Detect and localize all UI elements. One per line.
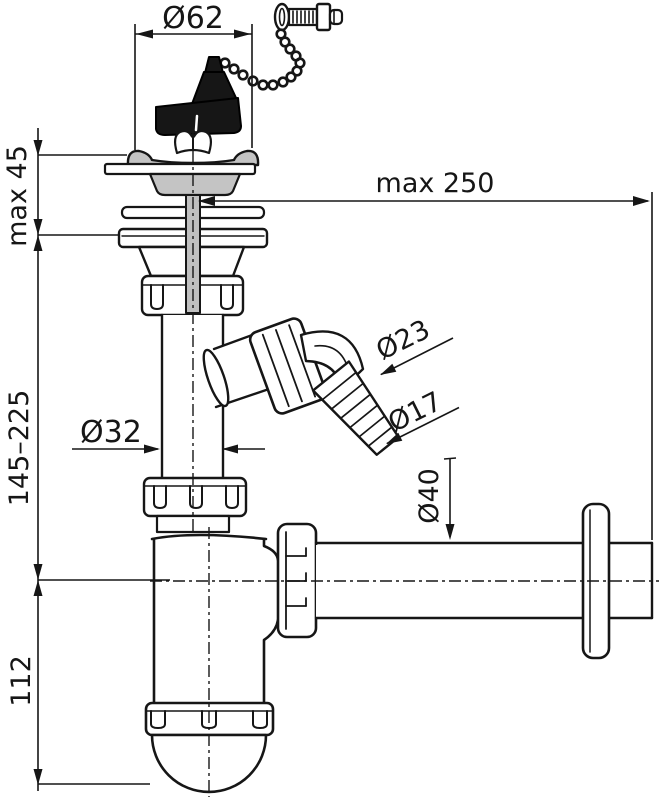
label-outlet-diameter: Ø40 xyxy=(414,468,445,524)
dim-height-chain xyxy=(34,128,171,791)
label-strainer-diameter: Ø62 xyxy=(162,1,224,36)
label-trap-height: 112 xyxy=(6,655,37,707)
siphon-technical-drawing-page: Ø62 max 250 max 45 145–225 112 Ø32 Ø23 Ø… xyxy=(0,0,661,800)
label-tailpipe-diameter: Ø32 xyxy=(80,415,142,450)
chain-holder xyxy=(275,4,342,30)
siphon-technical-drawing: Ø62 max 250 max 45 145–225 112 Ø32 Ø23 Ø… xyxy=(0,0,661,800)
trap-cup xyxy=(146,535,278,792)
drain-plug xyxy=(156,57,241,135)
label-max-wall-distance: max 250 xyxy=(376,168,495,199)
strainer-assembly xyxy=(105,131,267,315)
siphon-parts xyxy=(105,4,652,792)
label-hose-barb-large: Ø23 xyxy=(371,314,435,367)
dim-outlet-diameter xyxy=(444,458,456,540)
label-max-deck-thickness: max 45 xyxy=(2,145,33,247)
plug-chain xyxy=(221,30,305,90)
label-hose-barb-small: Ø17 xyxy=(383,386,447,439)
label-height-range: 145–225 xyxy=(4,390,35,507)
